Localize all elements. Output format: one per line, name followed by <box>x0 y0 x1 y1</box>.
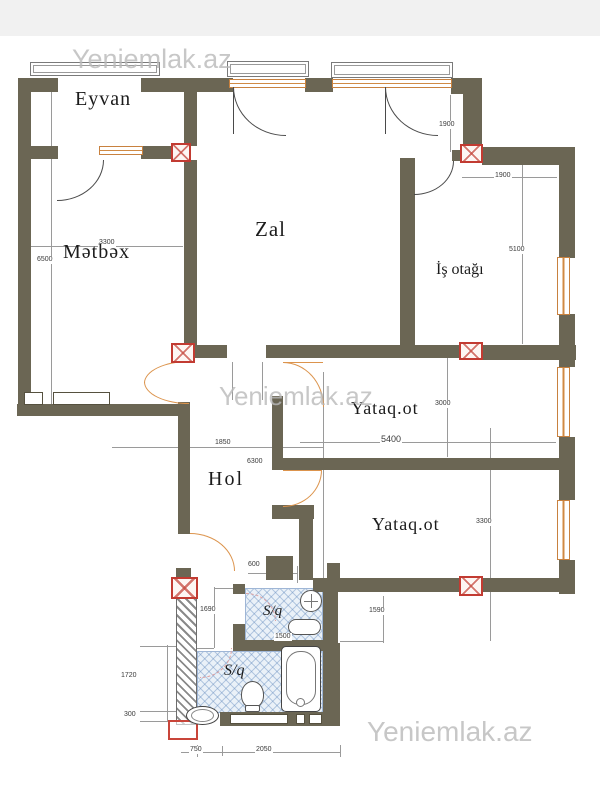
balcony-rail <box>331 62 453 78</box>
kitchen-counter <box>24 392 43 405</box>
top-band <box>0 0 600 36</box>
bath-shelf <box>309 714 322 724</box>
door-arc <box>57 160 104 201</box>
dimension-line <box>214 587 215 648</box>
kitchen-counter <box>53 392 110 405</box>
dimension-label: 5100 <box>508 246 526 254</box>
wall <box>400 158 415 348</box>
door-arc <box>190 533 235 571</box>
column-marker <box>460 144 483 163</box>
bath-shelf <box>296 714 305 724</box>
column-marker <box>459 342 483 360</box>
column-marker <box>459 576 483 596</box>
wall <box>141 78 233 92</box>
room-label-eyvan: Eyvan <box>75 88 131 111</box>
wall <box>327 563 340 580</box>
door-arc <box>414 161 454 195</box>
wall <box>463 92 482 147</box>
dimension-label: 600 <box>247 561 261 569</box>
dimension-label: 1500 <box>274 633 292 641</box>
dimension-label: 1720 <box>120 672 138 680</box>
dimension-line <box>297 566 298 583</box>
dimension-label: 1590 <box>368 607 386 615</box>
bathtub-drain <box>296 698 305 707</box>
wall <box>184 160 197 346</box>
wall <box>266 556 293 580</box>
watermark: Yeniemlak.az <box>72 44 232 75</box>
dimension-label: 3300 <box>475 518 493 526</box>
dimension-label: 1900 <box>494 172 512 180</box>
dimension-label: 5400 <box>380 434 402 444</box>
dimension-line <box>340 641 383 642</box>
room-label-is-otagi: İş otağı <box>436 261 484 279</box>
window <box>557 257 570 315</box>
window <box>99 146 143 155</box>
window <box>557 500 570 560</box>
window <box>557 367 570 437</box>
wall <box>141 146 175 159</box>
door-arc <box>144 382 189 404</box>
dimension-line <box>340 745 341 757</box>
watermark: Yeniemlak.az <box>219 381 373 412</box>
sink-icon <box>300 590 322 612</box>
dimension-label: 6300 <box>246 458 264 466</box>
wall <box>313 578 564 592</box>
door-arc <box>283 470 322 507</box>
column-marker <box>171 143 191 162</box>
dimension-line <box>51 92 52 404</box>
room-label-sq-2: S/q <box>224 662 244 680</box>
wall <box>266 345 462 358</box>
wall <box>184 91 197 146</box>
floor-plan: Yeniemlak.az Yeniemlak.az Yeniemlak.az <box>0 0 600 800</box>
column-marker <box>171 343 195 363</box>
door-arc <box>144 361 189 383</box>
door-arc <box>233 87 286 136</box>
hatched-wall <box>176 597 197 725</box>
balcony-rail <box>227 61 309 77</box>
dimension-label: 3000 <box>434 400 452 408</box>
wall <box>178 402 190 534</box>
dimension-line <box>112 447 323 448</box>
wall <box>17 404 180 416</box>
watermark: Yeniemlak.az <box>367 716 533 748</box>
dimension-label: 750 <box>189 746 203 754</box>
dimension-label: 1850 <box>214 439 232 447</box>
wall <box>482 345 576 360</box>
dimension-line <box>383 596 384 643</box>
room-label-metbex: Mətbəx <box>63 241 130 264</box>
room-label-hol: Hol <box>208 468 244 491</box>
wall <box>18 78 31 409</box>
dimension-label: 2050 <box>255 746 273 754</box>
dimension-line <box>300 442 556 443</box>
dimension-label: 300 <box>123 711 137 719</box>
door-arc <box>385 87 438 136</box>
dimension-label: 1900 <box>438 121 456 129</box>
wall <box>195 345 227 358</box>
column-marker <box>171 577 198 599</box>
room-label-sq-1: S/q <box>263 603 282 620</box>
room-label-yataq-2: Yataq.ot <box>372 514 440 535</box>
wall <box>305 78 333 92</box>
bathtub-inner <box>286 651 316 705</box>
dimension-line <box>490 428 491 596</box>
dimension-line <box>222 746 223 756</box>
wall <box>559 158 575 258</box>
dimension-label: 1690 <box>199 606 217 614</box>
toilet-tank <box>245 705 260 712</box>
wall <box>323 583 338 643</box>
dimension-line <box>490 596 491 641</box>
wall <box>20 146 58 159</box>
wall <box>299 556 313 580</box>
wall <box>272 458 564 470</box>
sink-inner <box>191 709 214 722</box>
toilet-icon <box>288 619 321 635</box>
dimension-label: 6500 <box>36 256 54 264</box>
wall <box>233 584 245 594</box>
room-label-zal: Zal <box>255 217 286 242</box>
toilet-icon <box>241 681 264 708</box>
bath-shelf <box>230 714 288 724</box>
